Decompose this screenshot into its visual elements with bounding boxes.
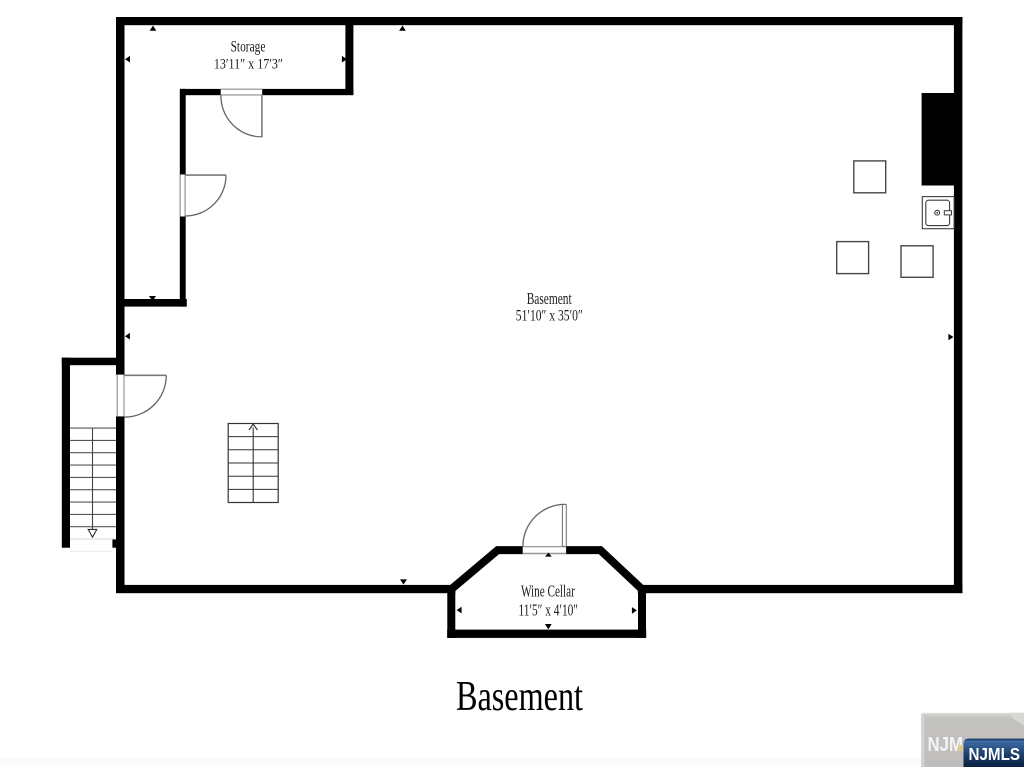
svg-text:Wine Cellar: Wine Cellar	[521, 582, 575, 601]
svg-text:NJM: NJM	[928, 734, 964, 756]
svg-text:Basement: Basement	[456, 673, 583, 720]
svg-text:Basement: Basement	[527, 289, 572, 308]
svg-text:NJMLS: NJMLS	[969, 744, 1021, 764]
svg-text:11′5″ x 4′10″: 11′5″ x 4′10″	[519, 600, 579, 619]
svg-text:Storage: Storage	[231, 39, 266, 56]
svg-text:13′11″ x 17′3″: 13′11″ x 17′3″	[214, 56, 283, 72]
svg-text:51′10″ x 35′0″: 51′10″ x 35′0″	[516, 307, 583, 324]
